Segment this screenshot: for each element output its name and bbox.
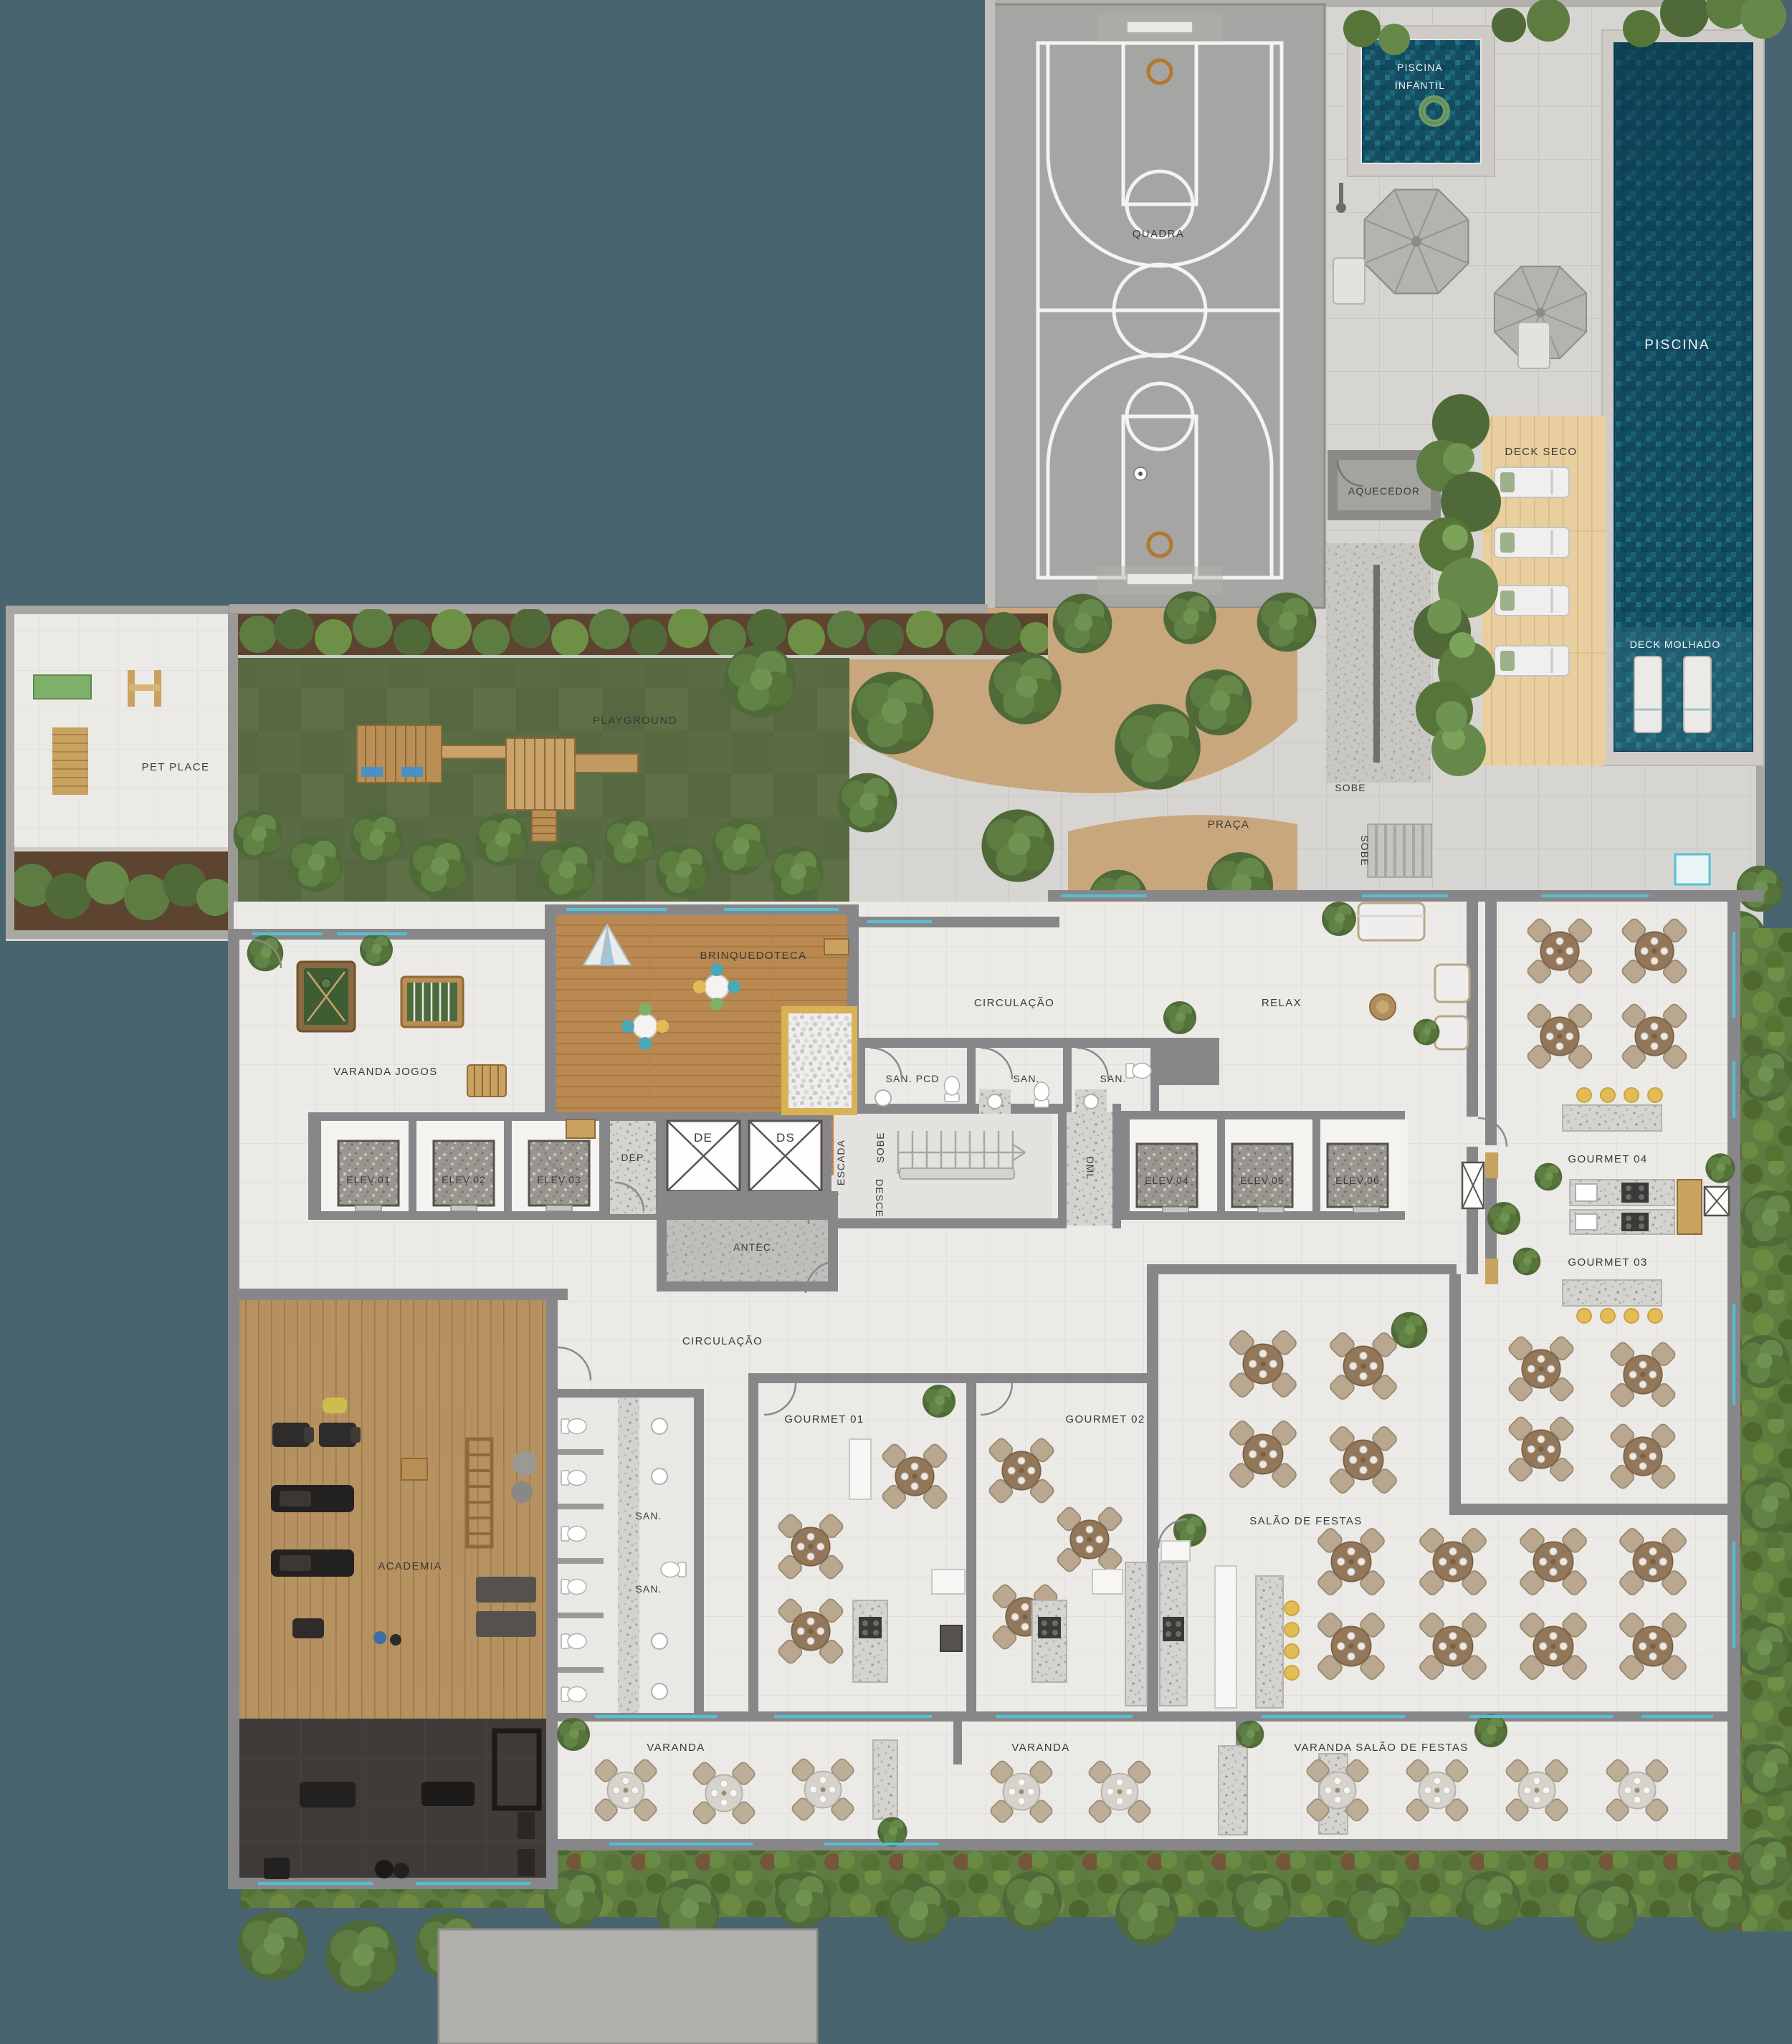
svg-text:ELEV.01: ELEV.01 <box>346 1174 391 1185</box>
svg-text:GOURMET 01: GOURMET 01 <box>784 1413 864 1425</box>
svg-text:SOBE: SOBE <box>874 1132 886 1162</box>
svg-text:ESCADA: ESCADA <box>835 1140 847 1185</box>
svg-text:SAN.: SAN. <box>635 1510 662 1522</box>
svg-text:VARANDA: VARANDA <box>1011 1742 1069 1754</box>
svg-text:GOURMET 04: GOURMET 04 <box>1568 1153 1647 1165</box>
svg-text:DEP.: DEP. <box>621 1152 646 1163</box>
svg-text:VARANDA: VARANDA <box>647 1742 705 1754</box>
svg-text:SAN.: SAN. <box>635 1583 662 1595</box>
svg-text:CIRCULAÇÃO: CIRCULAÇÃO <box>974 997 1054 1009</box>
svg-text:PISCINA: PISCINA <box>1397 62 1443 73</box>
svg-text:SOBE: SOBE <box>1335 782 1366 793</box>
svg-text:DECK SECO: DECK SECO <box>1505 446 1578 458</box>
svg-text:GOURMET 03: GOURMET 03 <box>1568 1256 1647 1269</box>
svg-text:PRAÇA: PRAÇA <box>1208 818 1250 831</box>
svg-text:SOBE: SOBE <box>1359 835 1371 866</box>
svg-text:PLAYGROUND: PLAYGROUND <box>593 715 677 727</box>
svg-text:ELEV.05: ELEV.05 <box>1240 1175 1285 1186</box>
svg-text:DS: DS <box>776 1131 795 1145</box>
svg-text:DESCE: DESCE <box>874 1179 885 1218</box>
svg-text:INFANTIL: INFANTIL <box>1395 80 1445 91</box>
svg-text:ELEV.06: ELEV.06 <box>1335 1175 1380 1186</box>
svg-text:GOURMET 02: GOURMET 02 <box>1065 1413 1145 1425</box>
svg-text:SAN.: SAN. <box>1100 1073 1126 1084</box>
svg-text:ELEV.04: ELEV.04 <box>1145 1175 1189 1186</box>
svg-text:SAN. PCD: SAN. PCD <box>886 1073 940 1084</box>
svg-text:ANTEC.: ANTEC. <box>733 1241 775 1253</box>
svg-text:QUADRA: QUADRA <box>1133 228 1185 240</box>
svg-text:RELAX: RELAX <box>1262 997 1302 1009</box>
svg-text:PET PLACE: PET PLACE <box>142 761 210 773</box>
svg-text:SALÃO DE FESTAS: SALÃO DE FESTAS <box>1249 1515 1362 1527</box>
svg-text:CIRCULAÇÃO: CIRCULAÇÃO <box>682 1335 763 1347</box>
svg-text:PISCINA: PISCINA <box>1644 338 1710 353</box>
svg-text:ACADEMIA: ACADEMIA <box>378 1560 442 1572</box>
svg-text:VARANDA SALÃO DE FESTAS: VARANDA SALÃO DE FESTAS <box>1294 1742 1468 1754</box>
svg-text:VARANDA JOGOS: VARANDA JOGOS <box>333 1066 437 1078</box>
svg-text:SAN.: SAN. <box>1013 1073 1039 1084</box>
svg-text:BRINQUEDOTECA: BRINQUEDOTECA <box>700 950 806 962</box>
svg-text:DE: DE <box>694 1131 712 1145</box>
svg-text:AQUECEDOR: AQUECEDOR <box>1348 485 1420 497</box>
svg-text:ELEV.02: ELEV.02 <box>442 1174 486 1185</box>
svg-text:DML: DML <box>1085 1157 1096 1180</box>
svg-text:DECK MOLHADO: DECK MOLHADO <box>1630 639 1721 650</box>
